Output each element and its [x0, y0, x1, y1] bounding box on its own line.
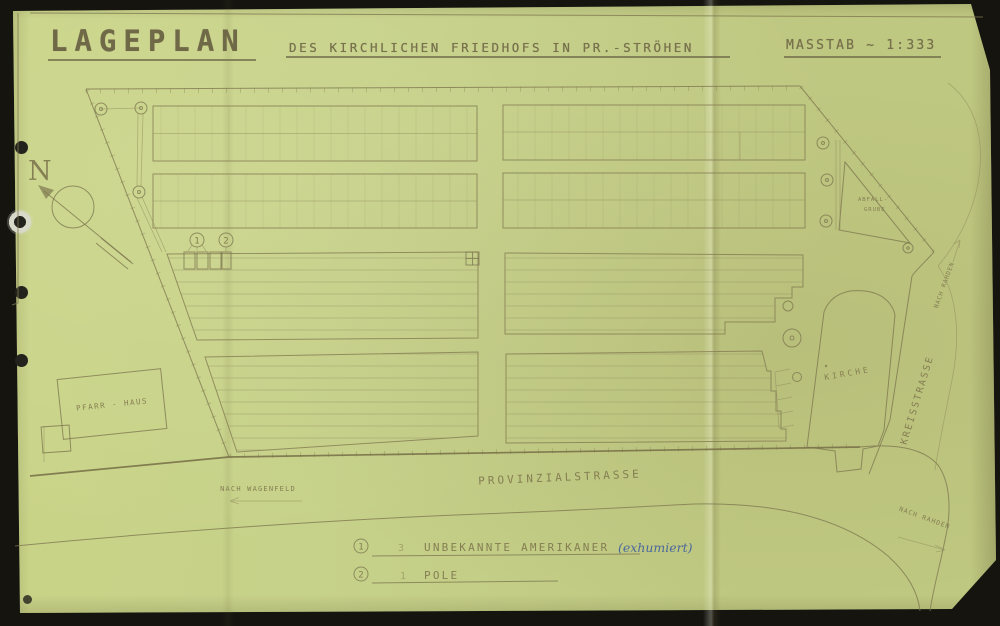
plan-marker-2: 2 — [223, 237, 228, 247]
legend-count-2: 1 — [400, 571, 406, 582]
pfarrhaus-label: PFARR - HAUS — [76, 396, 149, 412]
legend-note-exhumiert: (exhumiert) — [618, 540, 693, 555]
legend: 1 3 UNBEKANNTE AMERIKANER (exhumiert) 2 … — [354, 539, 693, 583]
nach-wagenfeld-label: NACH WAGENFELD — [220, 485, 296, 493]
plan-marker-1: 1 — [194, 237, 199, 247]
nach-rahden-north-label: NACH RAHDEN — [933, 261, 956, 309]
plan-drawing: 1 2 ABFALL- GRUBE KIRC — [0, 0, 1000, 626]
provinzialstrasse-label: PROVINZIALSTRASSE — [478, 467, 642, 487]
trees-near-church — [783, 301, 802, 382]
wagenfeld-arrow — [230, 498, 302, 505]
waste-pit-label-2: GRUBE — [864, 207, 886, 213]
legend-count-1: 3 — [398, 543, 404, 554]
nach-rahden-south-label: NACH RAHDEN — [898, 505, 952, 531]
grave-block-se — [506, 351, 786, 443]
grave-block-mid-left — [167, 252, 478, 340]
rahden-south-arrow — [898, 537, 945, 552]
pfarrhaus: PFARR - HAUS — [41, 369, 167, 462]
legend-marker-2: 2 — [358, 571, 363, 581]
waste-pit-label-1: ABFALL- — [858, 197, 888, 203]
legend-label-2: POLE — [424, 569, 459, 582]
waste-pit-area: ABFALL- GRUBE — [817, 137, 913, 253]
compass-rose — [38, 185, 133, 269]
legend-row-1: 1 3 UNBEKANNTE AMERIKANER (exhumiert) — [354, 539, 693, 556]
legend-label-1: UNBEKANNTE AMERIKANER — [424, 541, 609, 554]
legend-row-2: 2 1 POLE — [354, 567, 558, 583]
scanned-site-plan: LAGEPLAN DES KIRCHLICHEN FRIEDHOFS IN PR… — [0, 0, 1000, 626]
legend-marker-1: 1 — [358, 543, 363, 553]
grave-block-ne-lower — [503, 173, 805, 228]
church-label: KIRCHE — [824, 365, 872, 382]
kreisstrasse-label: KREISSTRASSE — [899, 354, 937, 446]
grave-block-sw — [205, 352, 478, 452]
grave-block-ne-upper — [503, 105, 805, 160]
church: KIRCHE — [807, 291, 895, 472]
grave-block-mid-right — [505, 253, 803, 334]
grave-block-nw-upper — [153, 106, 477, 161]
grave-block-nw-lower — [153, 174, 477, 228]
